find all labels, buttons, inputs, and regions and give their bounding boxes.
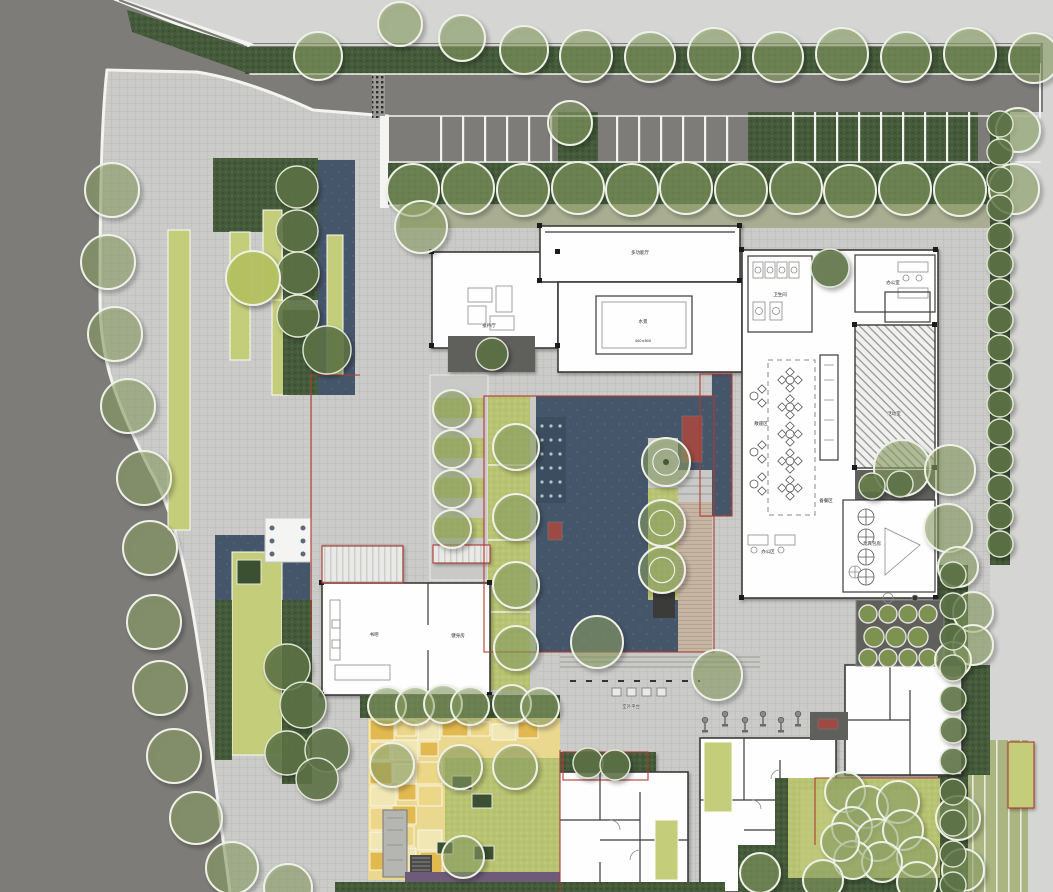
hedge-tree-icon xyxy=(987,167,1013,193)
hedge-tree-icon xyxy=(296,758,338,800)
tree-icon xyxy=(688,28,740,80)
mosaic-patch xyxy=(418,786,442,806)
tree-icon xyxy=(560,30,612,82)
tree-icon xyxy=(493,494,539,540)
pergola-column-icon xyxy=(270,552,275,557)
hedge-tree-icon xyxy=(940,748,966,774)
tree-icon xyxy=(924,504,972,552)
round-table-icon xyxy=(858,509,874,525)
dark-paver-block xyxy=(653,592,675,618)
hedge-tree-icon xyxy=(987,531,1013,557)
hedge-tree-icon xyxy=(573,748,603,778)
tree-icon xyxy=(521,688,559,726)
tree-icon xyxy=(770,162,822,214)
hedge-tree-icon xyxy=(987,447,1013,473)
hedge-tree-icon xyxy=(987,335,1013,361)
room-label: 接待厅 xyxy=(482,322,496,329)
tree-icon xyxy=(740,853,780,892)
tree-icon xyxy=(552,162,604,214)
tree-icon xyxy=(897,862,937,892)
hedge-tree-icon xyxy=(987,391,1013,417)
red-bench xyxy=(548,522,562,540)
stepping-dot-icon xyxy=(558,452,561,455)
play-equipment xyxy=(383,810,407,877)
stepping-dot-icon xyxy=(549,452,552,455)
specimen-tree-icon xyxy=(226,251,280,305)
hedge-tree-icon xyxy=(940,872,966,892)
parking-island-2 xyxy=(748,112,790,164)
room-label: 多功能厅 xyxy=(631,249,649,256)
stepping-dot-icon xyxy=(540,480,543,483)
stepping-dot-icon xyxy=(540,494,543,497)
room-label: 书吧 xyxy=(370,631,379,638)
hedge-tree-icon xyxy=(987,419,1013,445)
hedge-tree-icon xyxy=(940,717,966,743)
tree-icon xyxy=(879,163,931,215)
hedge-tree-icon xyxy=(987,475,1013,501)
hedge-tree-icon xyxy=(987,139,1013,165)
hedge-tree-icon xyxy=(277,252,319,294)
tree-icon xyxy=(123,521,177,575)
tree-icon xyxy=(816,28,868,80)
water-arm-east xyxy=(712,374,732,516)
shrub-square xyxy=(237,560,261,584)
tree-icon xyxy=(147,729,201,783)
planting-strip xyxy=(168,230,190,530)
tree-icon xyxy=(803,860,843,892)
tree-icon xyxy=(660,162,712,214)
stepping-dot-icon xyxy=(549,466,552,469)
tree-icon xyxy=(493,745,537,789)
pergola-column-icon xyxy=(301,552,306,557)
tree-icon xyxy=(442,836,484,878)
tree-icon xyxy=(88,307,142,361)
tree-icon xyxy=(451,687,489,725)
green-roof-slab-2 xyxy=(655,820,678,880)
mosaic-patch xyxy=(420,742,438,756)
round-planter-icon xyxy=(908,627,928,647)
hedge-tree-icon xyxy=(280,682,326,728)
hedge-edge xyxy=(215,600,232,760)
mosaic-patch xyxy=(398,784,416,800)
tree-icon xyxy=(101,379,155,433)
hedge-south-edge xyxy=(335,882,725,892)
site-plan-drawing: 多功能厅水景400×800接待厅卫生间办公室散座区备餐区活动室贵宾包房办公区书吧… xyxy=(0,0,1053,892)
tree-icon xyxy=(715,164,767,216)
hedge-tree-icon xyxy=(940,624,966,650)
site-plan: 多功能厅水景400×800接待厅卫生间办公室散座区备餐区活动室贵宾包房办公区书吧… xyxy=(0,0,1053,892)
ring-tree-icon xyxy=(639,547,685,593)
hedge-tree-icon xyxy=(276,210,318,252)
stepping-dot-icon xyxy=(549,438,552,441)
tree-icon xyxy=(753,32,803,82)
stepping-dot-icon xyxy=(558,494,561,497)
round-table-icon xyxy=(858,569,874,585)
corridor-roof-2 xyxy=(433,545,490,563)
corridor-roof xyxy=(322,545,403,582)
room-label: 备餐区 xyxy=(819,497,833,504)
tree-icon xyxy=(497,164,549,216)
pergola-column-icon xyxy=(301,539,306,544)
pergola-column-icon xyxy=(270,526,275,531)
tree-icon xyxy=(395,201,447,253)
tree-icon xyxy=(692,650,742,700)
stepping-dot-icon xyxy=(540,452,543,455)
round-planter-icon xyxy=(859,605,877,623)
hedge-tree-icon xyxy=(987,503,1013,529)
hedge-tree-icon xyxy=(940,779,966,805)
tree-icon xyxy=(606,164,658,216)
tree-icon xyxy=(439,15,485,61)
stepping-dot-icon xyxy=(558,466,561,469)
round-planter-icon xyxy=(879,649,897,667)
tree-icon xyxy=(493,424,539,470)
hedge-tree-icon xyxy=(887,471,913,497)
hedge-tree-icon xyxy=(987,279,1013,305)
tree-icon xyxy=(85,163,139,217)
grass-paver-bay-lines xyxy=(790,112,978,162)
hedge-tree-icon xyxy=(940,686,966,712)
room-label: 办公区 xyxy=(761,548,775,555)
tree-icon xyxy=(500,26,548,74)
hedge-tree-icon xyxy=(987,195,1013,221)
hedge-tree-icon xyxy=(476,338,508,370)
parking-bays-mid xyxy=(600,116,748,162)
round-planter-icon xyxy=(919,605,937,623)
room-label: 水景 xyxy=(639,318,648,325)
hedge-tree-icon xyxy=(987,223,1013,249)
round-planter-icon xyxy=(859,649,877,667)
tree-icon xyxy=(294,32,342,80)
room-label: 室外平台 xyxy=(622,703,640,710)
tree-icon xyxy=(824,165,876,217)
room-label: 办公室 xyxy=(886,279,900,286)
hedge-tree-icon xyxy=(940,655,966,681)
tree-icon xyxy=(821,823,859,861)
hedge-tree-icon xyxy=(600,750,630,780)
round-planter-icon xyxy=(886,627,906,647)
tree-icon xyxy=(494,626,538,670)
room-label: 卫生间 xyxy=(773,291,787,298)
room-label: 健身房 xyxy=(451,632,465,639)
green-roof-slab-3 xyxy=(1008,742,1034,808)
hedge-tree-icon xyxy=(859,473,885,499)
tree-icon xyxy=(548,101,592,145)
stepping-stone-pool xyxy=(536,417,566,503)
tree-icon xyxy=(117,451,171,505)
stepping-dot-icon xyxy=(549,494,552,497)
hedge-tree-icon xyxy=(987,307,1013,333)
bench-icon xyxy=(627,688,636,696)
hedge-tree-icon xyxy=(940,562,966,588)
tree-icon xyxy=(442,162,494,214)
tree-icon xyxy=(433,470,471,508)
tree-icon xyxy=(493,562,539,608)
round-planter-icon xyxy=(879,605,897,623)
tree-icon xyxy=(378,2,422,46)
room-label: 活动室 xyxy=(887,410,901,417)
stepping-dot-icon xyxy=(558,480,561,483)
hedge-tree-icon xyxy=(811,249,849,287)
room-label: 400×800 xyxy=(635,339,651,343)
tree-icon xyxy=(170,792,222,844)
hedge-tree-icon xyxy=(940,593,966,619)
hedge-tree-icon xyxy=(987,363,1013,389)
hedge-tree-icon xyxy=(276,166,318,208)
stepping-dot-icon xyxy=(558,424,561,427)
hedge-tree-icon xyxy=(940,810,966,836)
tree-icon xyxy=(625,32,675,82)
tree-icon xyxy=(925,445,975,495)
bench-icon xyxy=(657,688,666,696)
pergola-column-icon xyxy=(270,539,275,544)
round-planter-icon xyxy=(899,649,917,667)
green-roof-slab xyxy=(704,742,732,812)
tree-icon xyxy=(438,745,482,789)
tree-icon xyxy=(127,595,181,649)
stepping-dot-icon xyxy=(540,424,543,427)
round-table-icon xyxy=(858,549,874,565)
reception-hall xyxy=(432,252,558,348)
tree-icon xyxy=(433,430,471,468)
hedge-tree-icon xyxy=(940,841,966,867)
tree-icon xyxy=(934,164,986,216)
room-label: 贵宾包房 xyxy=(863,540,881,547)
ring-tree-icon xyxy=(639,500,685,546)
ring-tree-icon xyxy=(642,438,690,486)
tree-icon xyxy=(433,390,471,428)
hedge-tree-icon xyxy=(303,326,351,374)
tree-icon xyxy=(1009,33,1053,83)
room-label: 散座区 xyxy=(754,420,768,427)
stepping-dot-icon xyxy=(549,480,552,483)
tree-icon xyxy=(133,661,187,715)
tree-icon xyxy=(81,235,135,289)
hedge-tree-icon xyxy=(987,251,1013,277)
stepping-dot-icon xyxy=(540,438,543,441)
bench-icon xyxy=(642,688,651,696)
hedge-tree-icon xyxy=(987,111,1013,137)
bench-icon xyxy=(612,688,621,696)
round-planter-icon xyxy=(899,605,917,623)
mosaic-patch xyxy=(370,786,396,806)
tree-icon xyxy=(433,510,471,548)
fitness-bench xyxy=(818,719,838,729)
stepping-dot-icon xyxy=(540,466,543,469)
book-bar-building xyxy=(322,583,490,695)
stepping-dot-icon xyxy=(549,424,552,427)
stepping-dot-icon xyxy=(558,438,561,441)
tree-icon xyxy=(571,616,623,668)
tree-icon xyxy=(881,32,931,82)
parking-bays-west xyxy=(432,116,556,162)
tree-icon xyxy=(370,743,414,787)
pergola-column-icon xyxy=(301,526,306,531)
mosaic-patch xyxy=(492,724,516,740)
tree-icon xyxy=(206,842,258,892)
tree-icon xyxy=(944,28,996,80)
round-planter-icon xyxy=(864,627,884,647)
